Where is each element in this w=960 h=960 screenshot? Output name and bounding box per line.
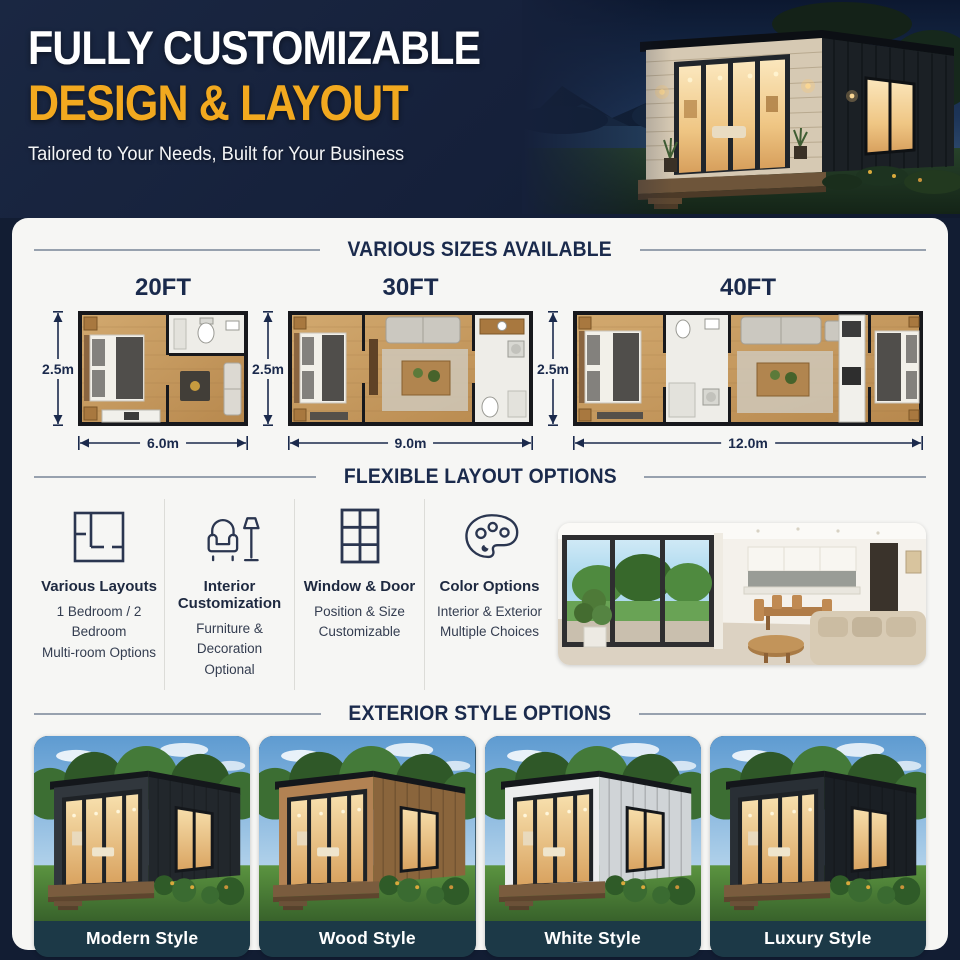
height-dimension: 2.5m <box>248 311 288 426</box>
option-interior-customization: Interior Customization Furniture & Decor… <box>164 499 294 690</box>
height-dimension-label: 2.5m <box>251 359 285 379</box>
page-subtitle: Tailored to Your Needs, Built for Your B… <box>28 144 404 166</box>
option-line: Multiple Choices <box>440 622 539 642</box>
option-various-layouts: Various Layouts 1 Bedroom / 2 Bedroom Mu… <box>34 499 164 690</box>
option-line: 1 Bedroom / 2 Bedroom <box>38 602 160 643</box>
sizes-section-header: VARIOUS SIZES AVAILABLE <box>34 238 926 262</box>
option-line: Customizable <box>319 622 401 642</box>
palette-icon <box>461 503 519 565</box>
layout-section-header: FLEXIBLE LAYOUT OPTIONS <box>34 465 926 489</box>
page-title-line1: FULLY CUSTOMIZABLE <box>28 24 480 72</box>
content-card: VARIOUS SIZES AVAILABLE 20FT 2.5m <box>12 218 948 950</box>
divider-line <box>644 476 926 478</box>
divider-line <box>34 713 321 715</box>
style-photo-white <box>485 736 701 921</box>
option-line: Optional <box>204 660 254 680</box>
layout-options-row: Various Layouts 1 Bedroom / 2 Bedroom Mu… <box>34 499 926 690</box>
width-dimension: 6.0m <box>78 435 248 451</box>
armchair-lamp-icon <box>198 503 262 565</box>
width-dimension-label: 6.0m <box>140 435 186 451</box>
divider-line <box>640 249 926 251</box>
style-card-luxury: Luxury Style <box>710 736 926 957</box>
option-title: Various Layouts <box>41 578 157 595</box>
style-label: Modern Style <box>34 921 250 957</box>
interior-photo <box>558 523 926 665</box>
style-card-white: White Style <box>485 736 701 957</box>
floorplan-30ft <box>288 311 533 426</box>
style-card-wood: Wood Style <box>259 736 475 957</box>
size-name: 30FT <box>288 274 533 302</box>
size-block-40ft: 40FT 2.5m <box>533 274 923 451</box>
option-line: Furniture & Decoration <box>169 619 290 660</box>
size-name: 40FT <box>573 274 923 302</box>
height-dimension-label: 2.5m <box>536 359 570 379</box>
size-name: 20FT <box>78 274 248 302</box>
option-color-options: Color Options Interior & Exterior Multip… <box>424 499 554 690</box>
divider-line <box>34 476 316 478</box>
style-card-modern: Modern Style <box>34 736 250 957</box>
exterior-section-title: EXTERIOR STYLE OPTIONS <box>349 702 612 726</box>
divider-line <box>639 713 926 715</box>
option-window-door: Window & Door Position & Size Customizab… <box>294 499 424 690</box>
hero-house-photo <box>522 0 960 214</box>
page-root: { "header": { "title_line1": "FULLY CUST… <box>0 0 960 960</box>
divider-line <box>34 249 320 251</box>
exterior-section-header: EXTERIOR STYLE OPTIONS <box>34 702 926 726</box>
style-label: Luxury Style <box>710 921 926 957</box>
option-line: Position & Size <box>314 602 405 622</box>
width-dimension: 12.0m <box>573 435 923 451</box>
width-dimension-label: 12.0m <box>721 435 775 451</box>
sizes-row: 20FT 2.5m <box>34 272 926 451</box>
height-dimension: 2.5m <box>533 311 573 426</box>
option-line: Multi-room Options <box>42 643 156 663</box>
width-dimension-label: 9.0m <box>388 435 434 451</box>
layout-section-title: FLEXIBLE LAYOUT OPTIONS <box>344 465 617 489</box>
sizes-section-title: VARIOUS SIZES AVAILABLE <box>348 238 612 262</box>
option-title: Interior Customization <box>169 578 290 612</box>
exterior-styles-row: Modern Style Woo <box>34 736 926 957</box>
floorplan-icon <box>71 503 127 565</box>
option-line: Interior & Exterior <box>437 602 542 622</box>
style-photo-wood <box>259 736 475 921</box>
header-banner: FULLY CUSTOMIZABLE DESIGN & LAYOUT Tailo… <box>0 0 960 218</box>
style-label: Wood Style <box>259 921 475 957</box>
height-dimension-label: 2.5m <box>41 359 75 379</box>
style-photo-modern <box>34 736 250 921</box>
width-dimension: 9.0m <box>288 435 533 451</box>
floorplan-40ft <box>573 311 923 426</box>
style-label: White Style <box>485 921 701 957</box>
size-block-30ft: 30FT 2.5m <box>248 274 533 451</box>
option-title: Window & Door <box>304 578 416 595</box>
size-block-20ft: 20FT 2.5m <box>38 274 248 451</box>
window-grid-icon <box>335 503 385 565</box>
option-title: Color Options <box>440 578 540 595</box>
style-photo-luxury <box>710 736 926 921</box>
page-title-line2: DESIGN & LAYOUT <box>28 78 408 128</box>
floorplan-20ft <box>78 311 248 426</box>
height-dimension: 2.5m <box>38 311 78 426</box>
